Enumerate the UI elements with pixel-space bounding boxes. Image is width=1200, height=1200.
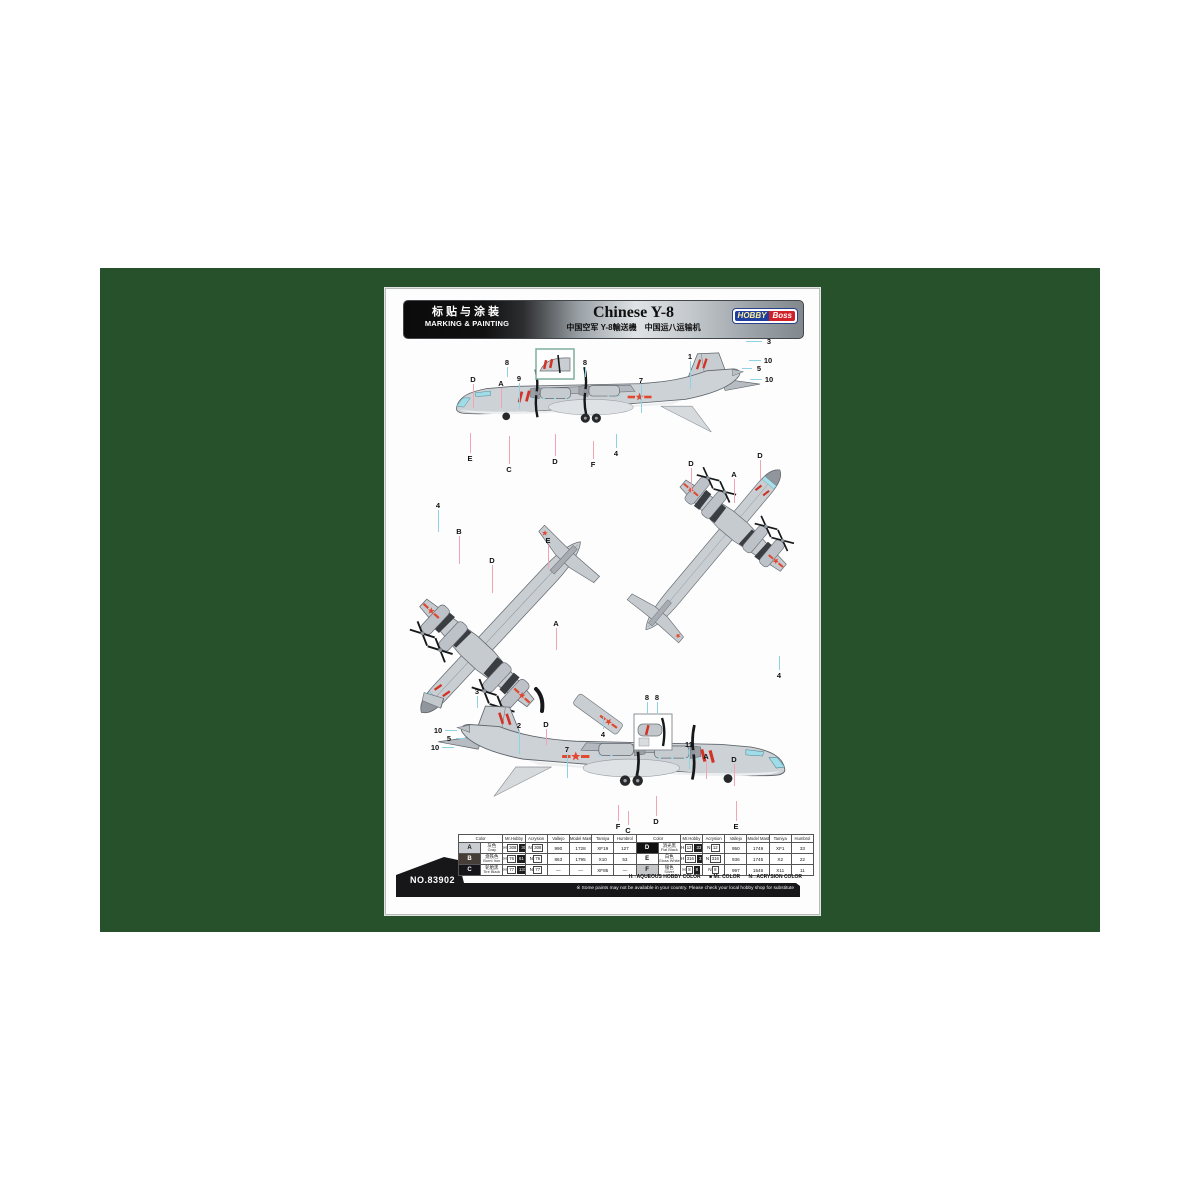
leader-line	[501, 388, 502, 408]
leader-line	[546, 729, 547, 745]
col-header-color: Color	[459, 835, 503, 843]
leader-line	[509, 436, 510, 464]
leader-line	[734, 479, 735, 503]
swatch-C: C	[459, 865, 481, 876]
callout-E: E	[464, 454, 476, 463]
leader-line	[647, 702, 648, 714]
callout-11: 11	[683, 740, 695, 749]
tamiya-E: X2	[769, 854, 791, 865]
col-header-mr-hobby: Mr.Hobby	[503, 835, 525, 843]
callout-8: 8	[579, 358, 591, 367]
paint-table-header: ColorMr.HobbyAcrysionVallejoModel Master…	[459, 835, 814, 843]
page-subtitle: 中国空军 Y-8輸送機 中国运八运输机	[526, 322, 741, 333]
leader-line	[749, 360, 761, 361]
callout-4: 4	[597, 730, 609, 739]
tamiya-D: XF1	[769, 843, 791, 854]
callout-4: 4	[773, 671, 785, 680]
callout-D: D	[486, 556, 498, 565]
callout-F: F	[587, 460, 599, 469]
vallejo-D: 950	[725, 843, 747, 854]
leader-line	[641, 385, 642, 413]
humbrol-B: 53	[614, 854, 636, 865]
leader-line	[593, 441, 594, 459]
vallejo-A: 990	[547, 843, 569, 854]
paint-row-BE: B烧铁色Burnt IronH7661N768631795X1053E白色Glo…	[459, 854, 814, 865]
callout-9: 9	[513, 374, 525, 383]
leader-line	[760, 460, 761, 480]
col-header-tamiya: Tamiya	[769, 835, 791, 843]
col-header-model-master: Model Master	[747, 835, 769, 843]
leader-line	[691, 468, 692, 492]
leader-line	[477, 696, 478, 708]
col-header-vallejo: Vallejo	[547, 835, 569, 843]
col-header-humbrol: Humbrol	[614, 835, 636, 843]
mr-hobby-A: H308308	[503, 843, 525, 854]
leader-line	[603, 717, 604, 729]
humbrol-D: 33	[791, 843, 813, 854]
callout-10: 10	[763, 375, 775, 384]
paint-system-legend: H□ AQUEOUS HOBBY COLOR ■ Mr. COLOR N□ AC…	[526, 874, 802, 880]
logo-boss: Boss	[769, 311, 795, 321]
callout-D: D	[540, 720, 552, 729]
color-name-D: 消光黑Flat Black	[658, 843, 680, 854]
swatch-B: B	[459, 854, 481, 865]
leader-line	[628, 811, 629, 825]
mr-hobby-D: H1233	[680, 843, 702, 854]
leader-line	[567, 754, 568, 778]
leader-line	[459, 536, 460, 564]
tamiya-B: X10	[592, 854, 614, 865]
callout-A: A	[728, 470, 740, 479]
leader-line	[616, 434, 617, 448]
legend-acrysion: N□ ACRYSION COLOR	[749, 874, 802, 880]
header-band: 标贴与涂装 MARKING & PAINTING Chinese Y-8 中国空…	[403, 300, 804, 339]
callout-5: 5	[443, 734, 455, 743]
leader-line	[742, 368, 752, 369]
logo-hobby: HOBBY	[735, 311, 770, 321]
callout-7: 7	[635, 376, 647, 385]
callout-A: A	[550, 619, 562, 628]
col-header-tamiya: Tamiya	[592, 835, 614, 843]
callout-4: 4	[432, 501, 444, 510]
swatch-A: A	[459, 843, 481, 854]
instruction-sheet: DA98871310510ECDF4DAD44BDEA32D488711AD10…	[385, 288, 820, 915]
leader-line	[690, 361, 691, 389]
col-header-model-master: Model Master	[569, 835, 591, 843]
leader-line	[779, 656, 780, 670]
callout-5: 5	[753, 364, 765, 373]
page-title: Chinese Y-8	[526, 303, 741, 322]
model-master-B: 1795	[569, 854, 591, 865]
leader-line	[519, 383, 520, 409]
callout-D: D	[728, 755, 740, 764]
vallejo-E: 936	[725, 854, 747, 865]
model-master-E: 1745	[747, 854, 769, 865]
callout-C: C	[503, 465, 515, 474]
leader-line	[445, 730, 457, 731]
callout-4: 4	[610, 449, 622, 458]
callout-2: 2	[513, 721, 525, 730]
acrysion-D: N12	[703, 843, 725, 854]
color-name-C: 轮胎黑Tire Black	[481, 865, 503, 876]
callout-8: 8	[651, 693, 663, 702]
col-header-color: Color	[636, 835, 680, 843]
callout-A: A	[495, 379, 507, 388]
marking-painting-cn: 标贴与涂装	[408, 305, 526, 319]
marking-painting-label: 标贴与涂装 MARKING & PAINTING	[408, 305, 526, 329]
leader-line	[689, 749, 690, 769]
leader-line	[473, 384, 474, 408]
leader-line	[548, 545, 549, 569]
model-master-A: 1728	[569, 843, 591, 854]
leader-line	[555, 434, 556, 456]
legend-mr-color: ■ Mr. COLOR	[709, 874, 740, 880]
callout-D: D	[549, 457, 561, 466]
acrysion-A: N308	[525, 843, 547, 854]
col-header-humbrol: Humbrol	[791, 835, 813, 843]
callout-8: 8	[501, 358, 513, 367]
kit-number: NO.83902	[410, 875, 455, 885]
humbrol-A: 127	[614, 843, 636, 854]
swatch-D: D	[636, 843, 658, 854]
callout-E: E	[730, 822, 742, 831]
paint-color-table: ColorMr.HobbyAcrysionVallejoModel Master…	[458, 834, 814, 876]
leader-line	[456, 738, 466, 739]
mr-hobby-B: H7661	[503, 854, 525, 865]
leader-line	[706, 761, 707, 779]
paint-footnote: ※ Some paints may not be available in yo…	[506, 886, 794, 891]
mr-hobby-C: H77137	[503, 865, 525, 876]
leader-line	[618, 805, 619, 821]
callout-B: B	[453, 527, 465, 536]
hobbyboss-logo: HOBBY Boss	[732, 308, 798, 324]
col-header-vallejo: Vallejo	[725, 835, 747, 843]
callout-3: 3	[471, 687, 483, 696]
col-header-acrysion: Acrysion	[703, 835, 725, 843]
leader-line	[585, 367, 586, 377]
leader-line	[519, 730, 520, 754]
callout-10: 10	[429, 743, 441, 752]
product-photo: { "page": { "header": { "left_cn": "标贴与涂…	[0, 0, 1200, 1200]
callout-E: E	[542, 536, 554, 545]
callout-A: A	[700, 752, 712, 761]
leader-line	[492, 565, 493, 593]
leader-line	[750, 379, 762, 380]
leader-line	[736, 801, 737, 821]
humbrol-E: 22	[791, 854, 813, 865]
col-header-acrysion: Acrysion	[525, 835, 547, 843]
callout-D: D	[685, 459, 697, 468]
leader-line	[438, 510, 439, 532]
callout-layer: DA98871310510ECDF4DAD44BDEA32D488711AD10…	[386, 289, 819, 914]
vallejo-B: 863	[547, 854, 569, 865]
leader-line	[442, 747, 454, 748]
leader-line	[734, 764, 735, 786]
leader-line	[470, 433, 471, 453]
leader-line	[507, 367, 508, 377]
color-name-E: 白色Gloss White	[658, 854, 680, 865]
legend-aqueous: H□ AQUEOUS HOBBY COLOR	[629, 874, 701, 880]
leader-line	[656, 796, 657, 816]
acrysion-B: N76	[525, 854, 547, 865]
callout-D: D	[650, 817, 662, 826]
leader-line	[746, 341, 762, 342]
model-master-D: 1749	[747, 843, 769, 854]
sheet-title-block: Chinese Y-8 中国空军 Y-8輸送機 中国运八运输机	[526, 303, 741, 333]
mr-hobby-E: H316316	[680, 854, 702, 865]
acrysion-E: N316	[703, 854, 725, 865]
callout-D: D	[467, 375, 479, 384]
callout-D: D	[754, 451, 766, 460]
leader-line	[657, 702, 658, 714]
callout-1: 1	[684, 352, 696, 361]
callout-7: 7	[561, 745, 573, 754]
color-name-B: 烧铁色Burnt Iron	[481, 854, 503, 865]
color-name-A: 灰色Gray	[481, 843, 503, 854]
swatch-E: E	[636, 854, 658, 865]
leader-line	[556, 628, 557, 650]
marking-painting-en: MARKING & PAINTING	[408, 319, 526, 329]
tamiya-A: XF19	[592, 843, 614, 854]
col-header-mr-hobby: Mr.Hobby	[680, 835, 702, 843]
paint-row-AD: A灰色GrayH308308N3089901728XF19127D消光黑Flat…	[459, 843, 814, 854]
